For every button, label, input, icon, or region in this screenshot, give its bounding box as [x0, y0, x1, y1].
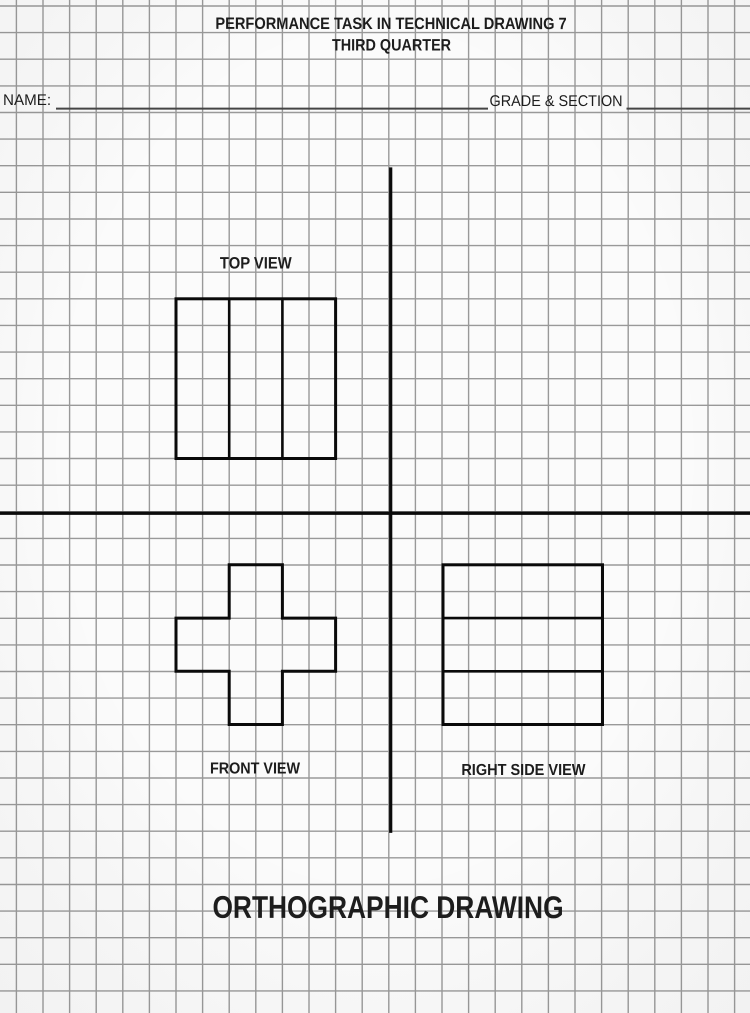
svg-text:PERFORMANCE TASK IN TECHNICAL: PERFORMANCE TASK IN TECHNICAL DRAWING 7 [215, 15, 566, 33]
svg-text:NAME:: NAME: [3, 92, 51, 109]
svg-text:THIRD QUARTER: THIRD QUARTER [332, 36, 451, 54]
svg-text:ORTHOGRAPHIC DRAWING: ORTHOGRAPHIC DRAWING [212, 889, 563, 925]
svg-text:FRONT VIEW: FRONT VIEW [210, 760, 301, 777]
svg-text:TOP VIEW: TOP VIEW [220, 254, 292, 272]
svg-text:RIGHT SIDE VIEW: RIGHT SIDE VIEW [461, 762, 586, 779]
svg-text:GRADE & SECTION: GRADE & SECTION [489, 93, 622, 110]
